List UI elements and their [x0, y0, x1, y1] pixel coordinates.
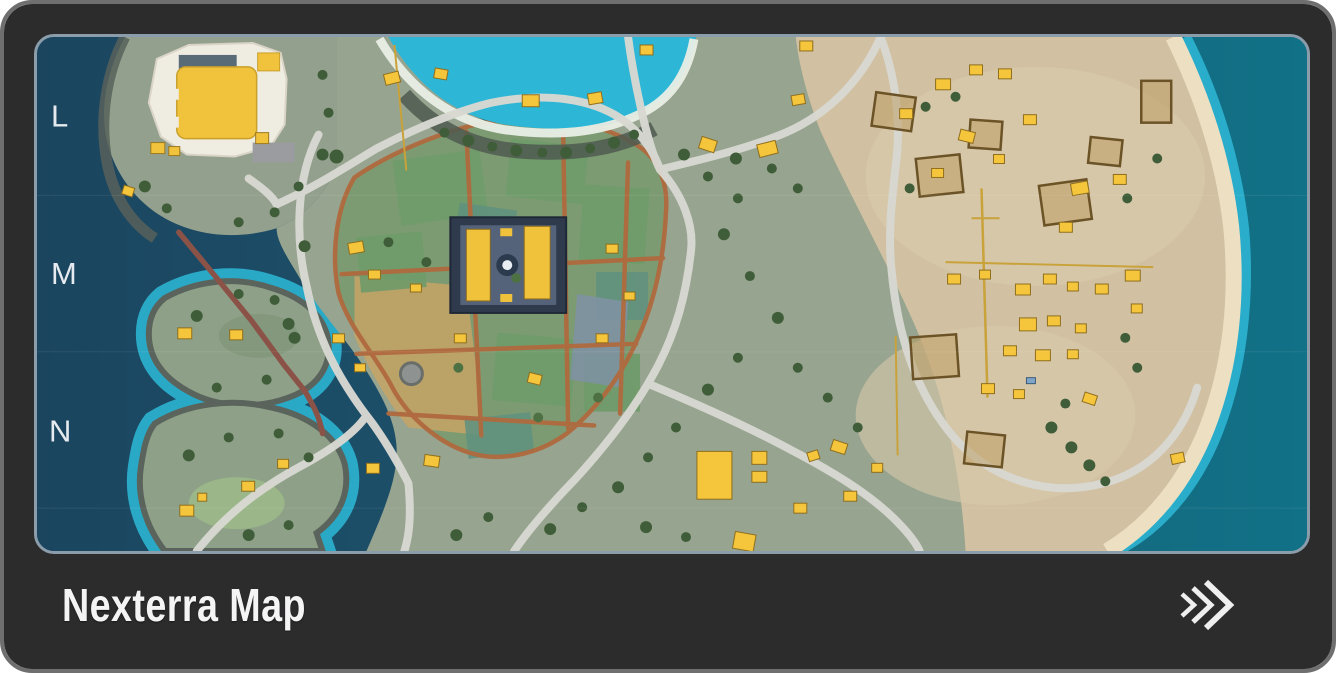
map-title: Nexterra Map	[62, 578, 306, 632]
card-footer: Nexterra Map	[4, 554, 1332, 656]
round-tower	[400, 363, 422, 385]
grid-label-M: M	[51, 256, 77, 291]
forward-button[interactable]	[1170, 573, 1246, 637]
temple-compound	[450, 217, 566, 313]
nexterra-map-graphic: L M N	[37, 37, 1307, 551]
map-card[interactable]: L M N Nexterra Map	[0, 0, 1336, 673]
fast-forward-chevrons-icon	[1174, 577, 1242, 633]
map-image: L M N	[34, 34, 1310, 554]
stadium	[149, 43, 295, 163]
grid-label-N: N	[49, 413, 71, 448]
vehicle	[1026, 378, 1035, 384]
grid-label-L: L	[51, 99, 68, 134]
